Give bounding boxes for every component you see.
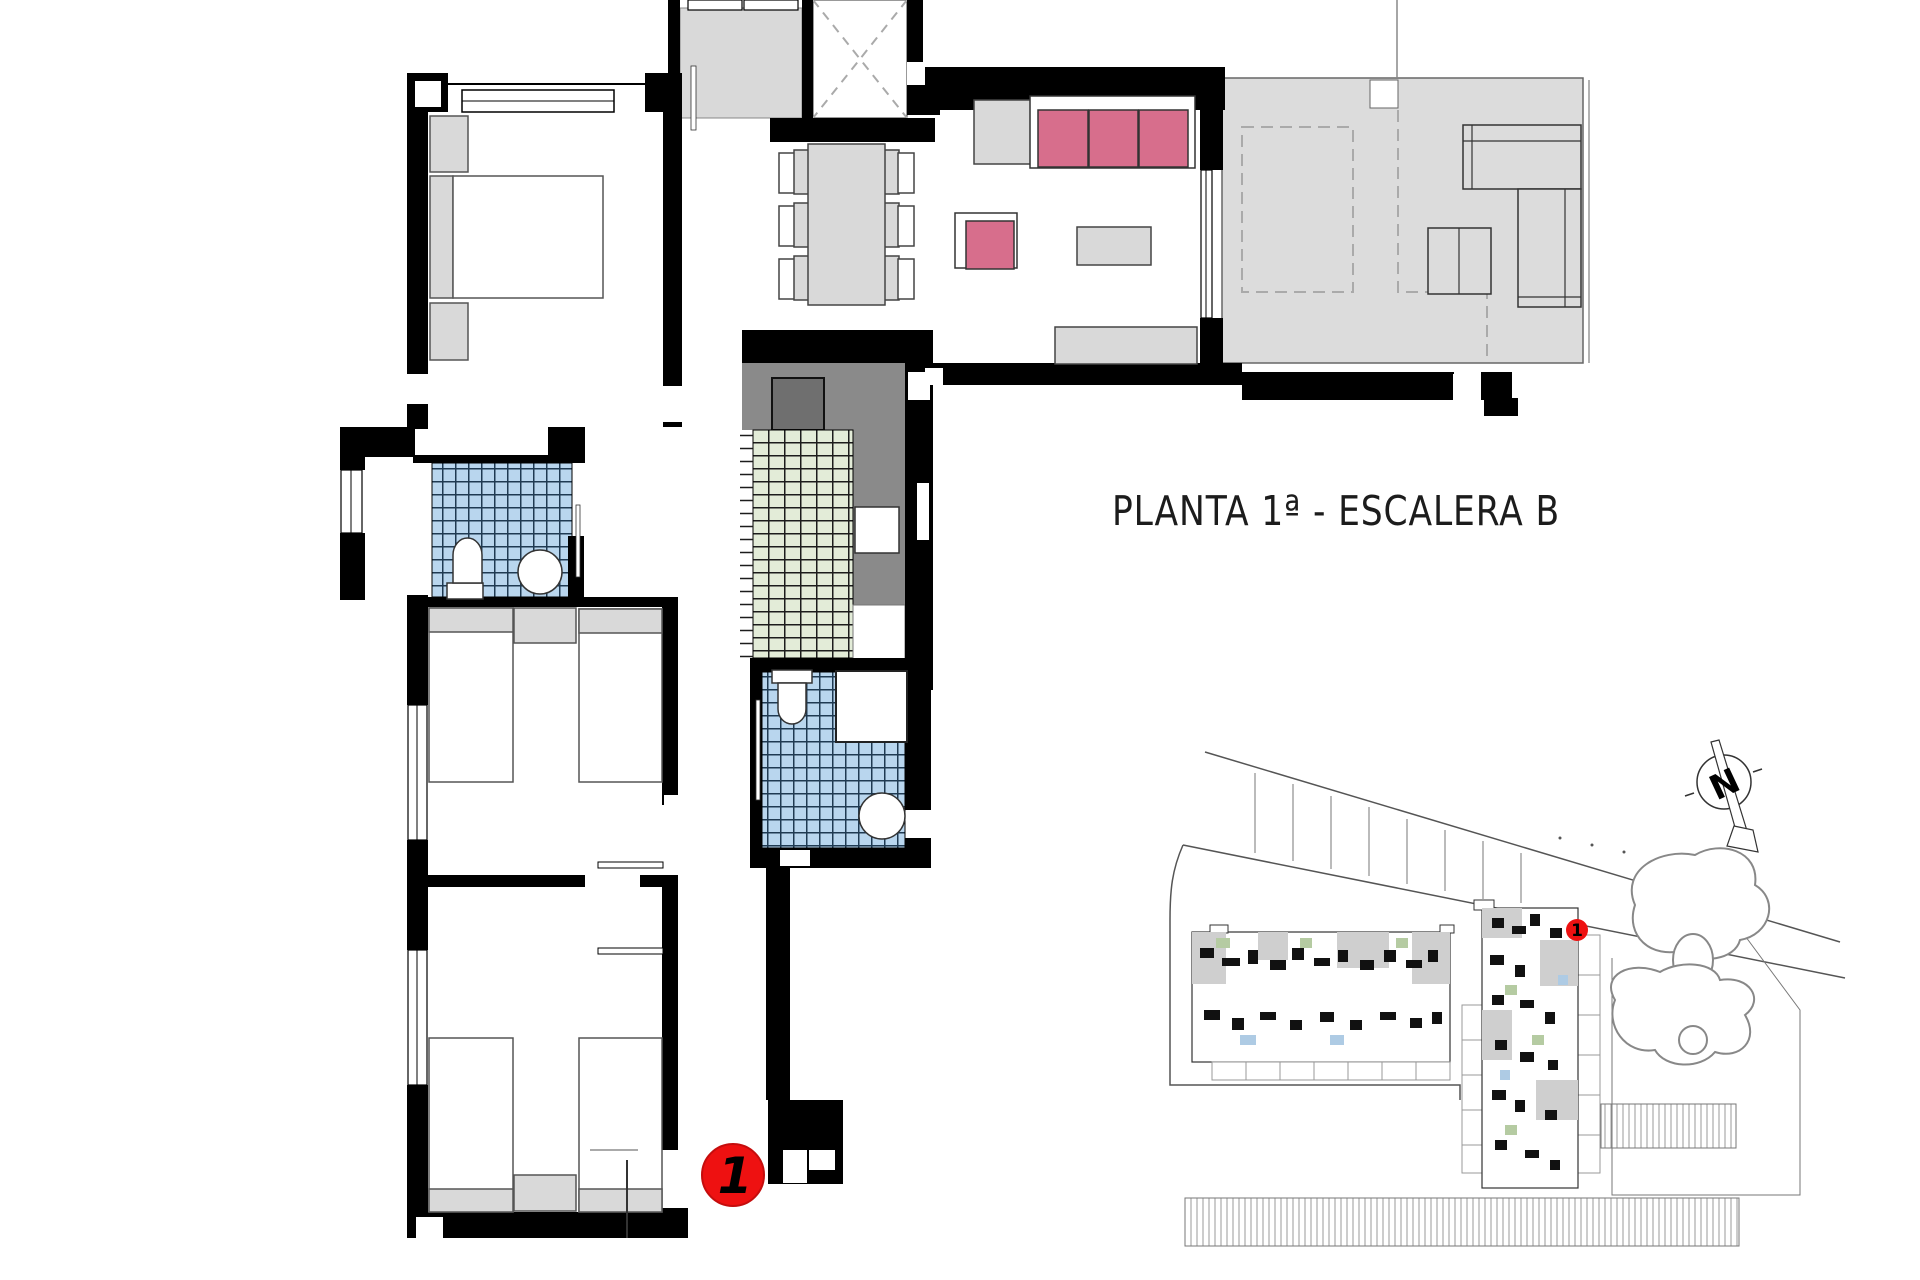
bed-headboard <box>430 176 453 298</box>
page-title: PLANTA 1ª - ESCALERA B <box>1112 487 1560 535</box>
sofa-cushions <box>1038 110 1188 167</box>
parking-hatch <box>1601 1104 1736 1148</box>
closet-rail <box>598 948 663 954</box>
single-bed <box>429 1038 513 1212</box>
single-bed <box>429 608 513 782</box>
washbasin <box>859 793 905 839</box>
nightstand <box>430 116 468 172</box>
single-bed <box>579 1038 662 1212</box>
nightstand <box>514 1175 576 1211</box>
elevator <box>680 0 802 130</box>
floor-plan-page: PLANTA 1ª - ESCALERA B 1 <box>0 0 1920 1280</box>
kitchen <box>740 363 905 660</box>
master-bedroom <box>430 116 603 360</box>
north-label: N <box>1703 761 1746 809</box>
closet-rail <box>598 862 663 868</box>
side-table <box>974 100 1031 164</box>
toilet <box>778 683 806 724</box>
site-plan: N 1 <box>1170 740 1845 1246</box>
north-arrow-icon: N <box>1685 740 1762 852</box>
bedroom-2 <box>429 608 663 868</box>
dining-chair <box>779 153 795 193</box>
parking-hatch <box>1185 1198 1739 1246</box>
sideboard <box>1055 327 1197 364</box>
coffee-table <box>1077 227 1151 265</box>
nightstand <box>430 303 468 360</box>
living-room <box>955 96 1197 364</box>
nightstand <box>514 608 576 643</box>
washbasin <box>518 550 562 594</box>
dining-area <box>779 144 914 305</box>
stair-shaft <box>813 0 907 118</box>
dining-table <box>808 144 885 305</box>
site-unit-marker[interactable]: 1 <box>1566 919 1588 941</box>
kitchen-island <box>772 378 824 430</box>
unit-marker[interactable]: 1 <box>702 1144 764 1206</box>
pool <box>1611 848 1769 1064</box>
dining-chair <box>779 206 795 246</box>
architectural-floor-plan: PLANTA 1ª - ESCALERA B 1 <box>0 0 1920 1280</box>
building-block-b <box>1462 900 1600 1188</box>
unit-marker-label: 1 <box>718 1147 753 1205</box>
terrace <box>1222 78 1589 363</box>
armchair-cushion <box>966 221 1014 269</box>
kitchen-floor-tiles <box>753 430 853 658</box>
parking-dividers <box>1255 773 1521 903</box>
toilet <box>453 538 482 583</box>
site-unit-marker-label: 1 <box>1571 921 1583 941</box>
building-block-a <box>1192 925 1454 1080</box>
double-bed <box>453 176 603 298</box>
kitchen-table <box>855 507 899 553</box>
dining-chair <box>779 259 795 299</box>
single-bed <box>579 609 662 782</box>
outdoor-table <box>1428 228 1491 294</box>
shower <box>836 671 907 742</box>
